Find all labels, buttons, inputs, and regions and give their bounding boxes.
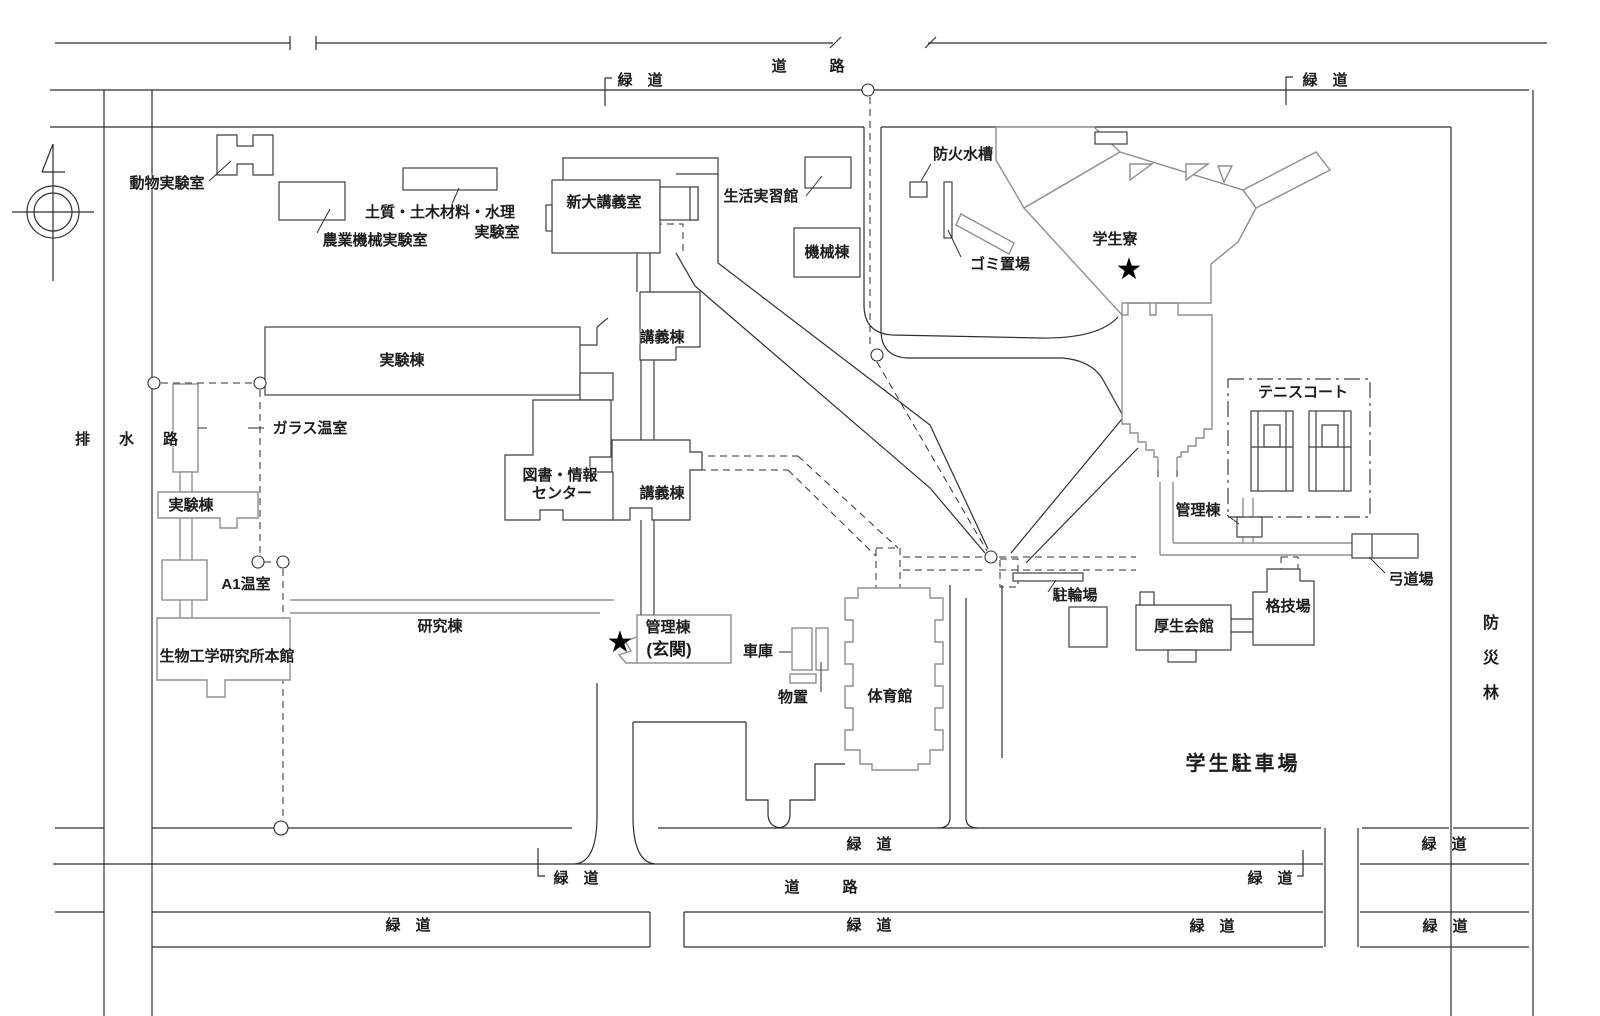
label-library-line1: 図書・情報 [522,467,597,485]
label-experiment-small: 実験棟 [168,497,213,515]
label-research-bldg: 研究棟 [417,618,462,636]
label-greenway-top-right: 緑 道 [1302,72,1347,90]
label-animal-lab: 動物実験室 [129,175,204,193]
label-admin-main: 管理棟 [645,619,690,637]
star-icon-dormitory: ★ [1116,255,1143,285]
label-bioeng-main: 生物工学研究所本館 [159,648,294,666]
campus-map-linework [0,0,1600,1016]
label-drainage: 排 水 路 [75,431,185,449]
compass-icon [12,144,94,281]
campus-map: 道 路 緑 道 緑 道 動物実験室 農業機械実験室 土質・土木材料・水理 実験室… [0,0,1600,1016]
label-a1-greenhouse: A1温室 [221,576,270,594]
label-kyudo: 弓道場 [1388,571,1433,589]
label-student-parking: 学生駐車場 [1186,752,1301,776]
label-greenway-top-left: 緑 道 [617,72,662,90]
label-lecture-lower: 講義棟 [639,485,684,503]
label-greenway-bot-4: 緑 道 [1422,918,1467,936]
label-fire-tank: 防火水槽 [933,146,993,164]
label-road-top: 道 路 [771,58,858,76]
label-machine-bldg: 機械棟 [804,244,849,262]
label-forest: 防 災 林 [1483,606,1499,712]
label-greenway-mid-2: 緑 道 [1421,836,1466,854]
label-storage: 物置 [778,689,808,707]
label-kosei-hall: 厚生会館 [1154,618,1214,636]
label-greenway-mid-1: 緑 道 [846,836,891,854]
road-lines [50,36,1547,1016]
label-gym: 体育館 [867,688,912,706]
label-bike-parking: 駐輪場 [1052,587,1097,605]
label-library-line2: センター [532,485,592,503]
label-glass-greenhouse: ガラス温室 [273,420,348,438]
label-tennis-court: テニスコート [1258,384,1348,402]
label-greenway-bot-1: 緑 道 [385,917,430,935]
label-admin-sub: 管理棟 [1175,502,1220,520]
label-shindai-lecture: 新大講義室 [566,194,641,212]
label-life-training: 生活実習館 [723,188,798,206]
label-admin-entrance: (玄関) [646,640,691,660]
label-lecture-upper: 講義棟 [639,329,684,347]
star-icon-admin: ★ [607,628,634,658]
label-agri-machine-lab: 農業機械実験室 [322,232,427,250]
buildings-gray [157,127,1352,770]
label-dormitory: 学生寮 [1092,231,1137,249]
label-soil-lab-line1: 土質・土木材料・水理 [365,204,515,222]
label-greenway-mid-4: 緑 道 [553,870,598,888]
label-greenway-bot-3: 緑 道 [1189,918,1234,936]
label-experiment-long: 実験棟 [379,352,424,370]
label-greenway-bot-2: 緑 道 [846,917,891,935]
label-road-bottom: 道 路 [784,879,871,897]
label-soil-lab-line2: 実験室 [474,224,519,242]
label-garbage: ゴミ置場 [970,256,1030,274]
label-garage: 車庫 [743,643,773,661]
label-greenway-mid-3: 緑 道 [1247,870,1292,888]
label-martial-arts: 格技場 [1265,598,1310,616]
